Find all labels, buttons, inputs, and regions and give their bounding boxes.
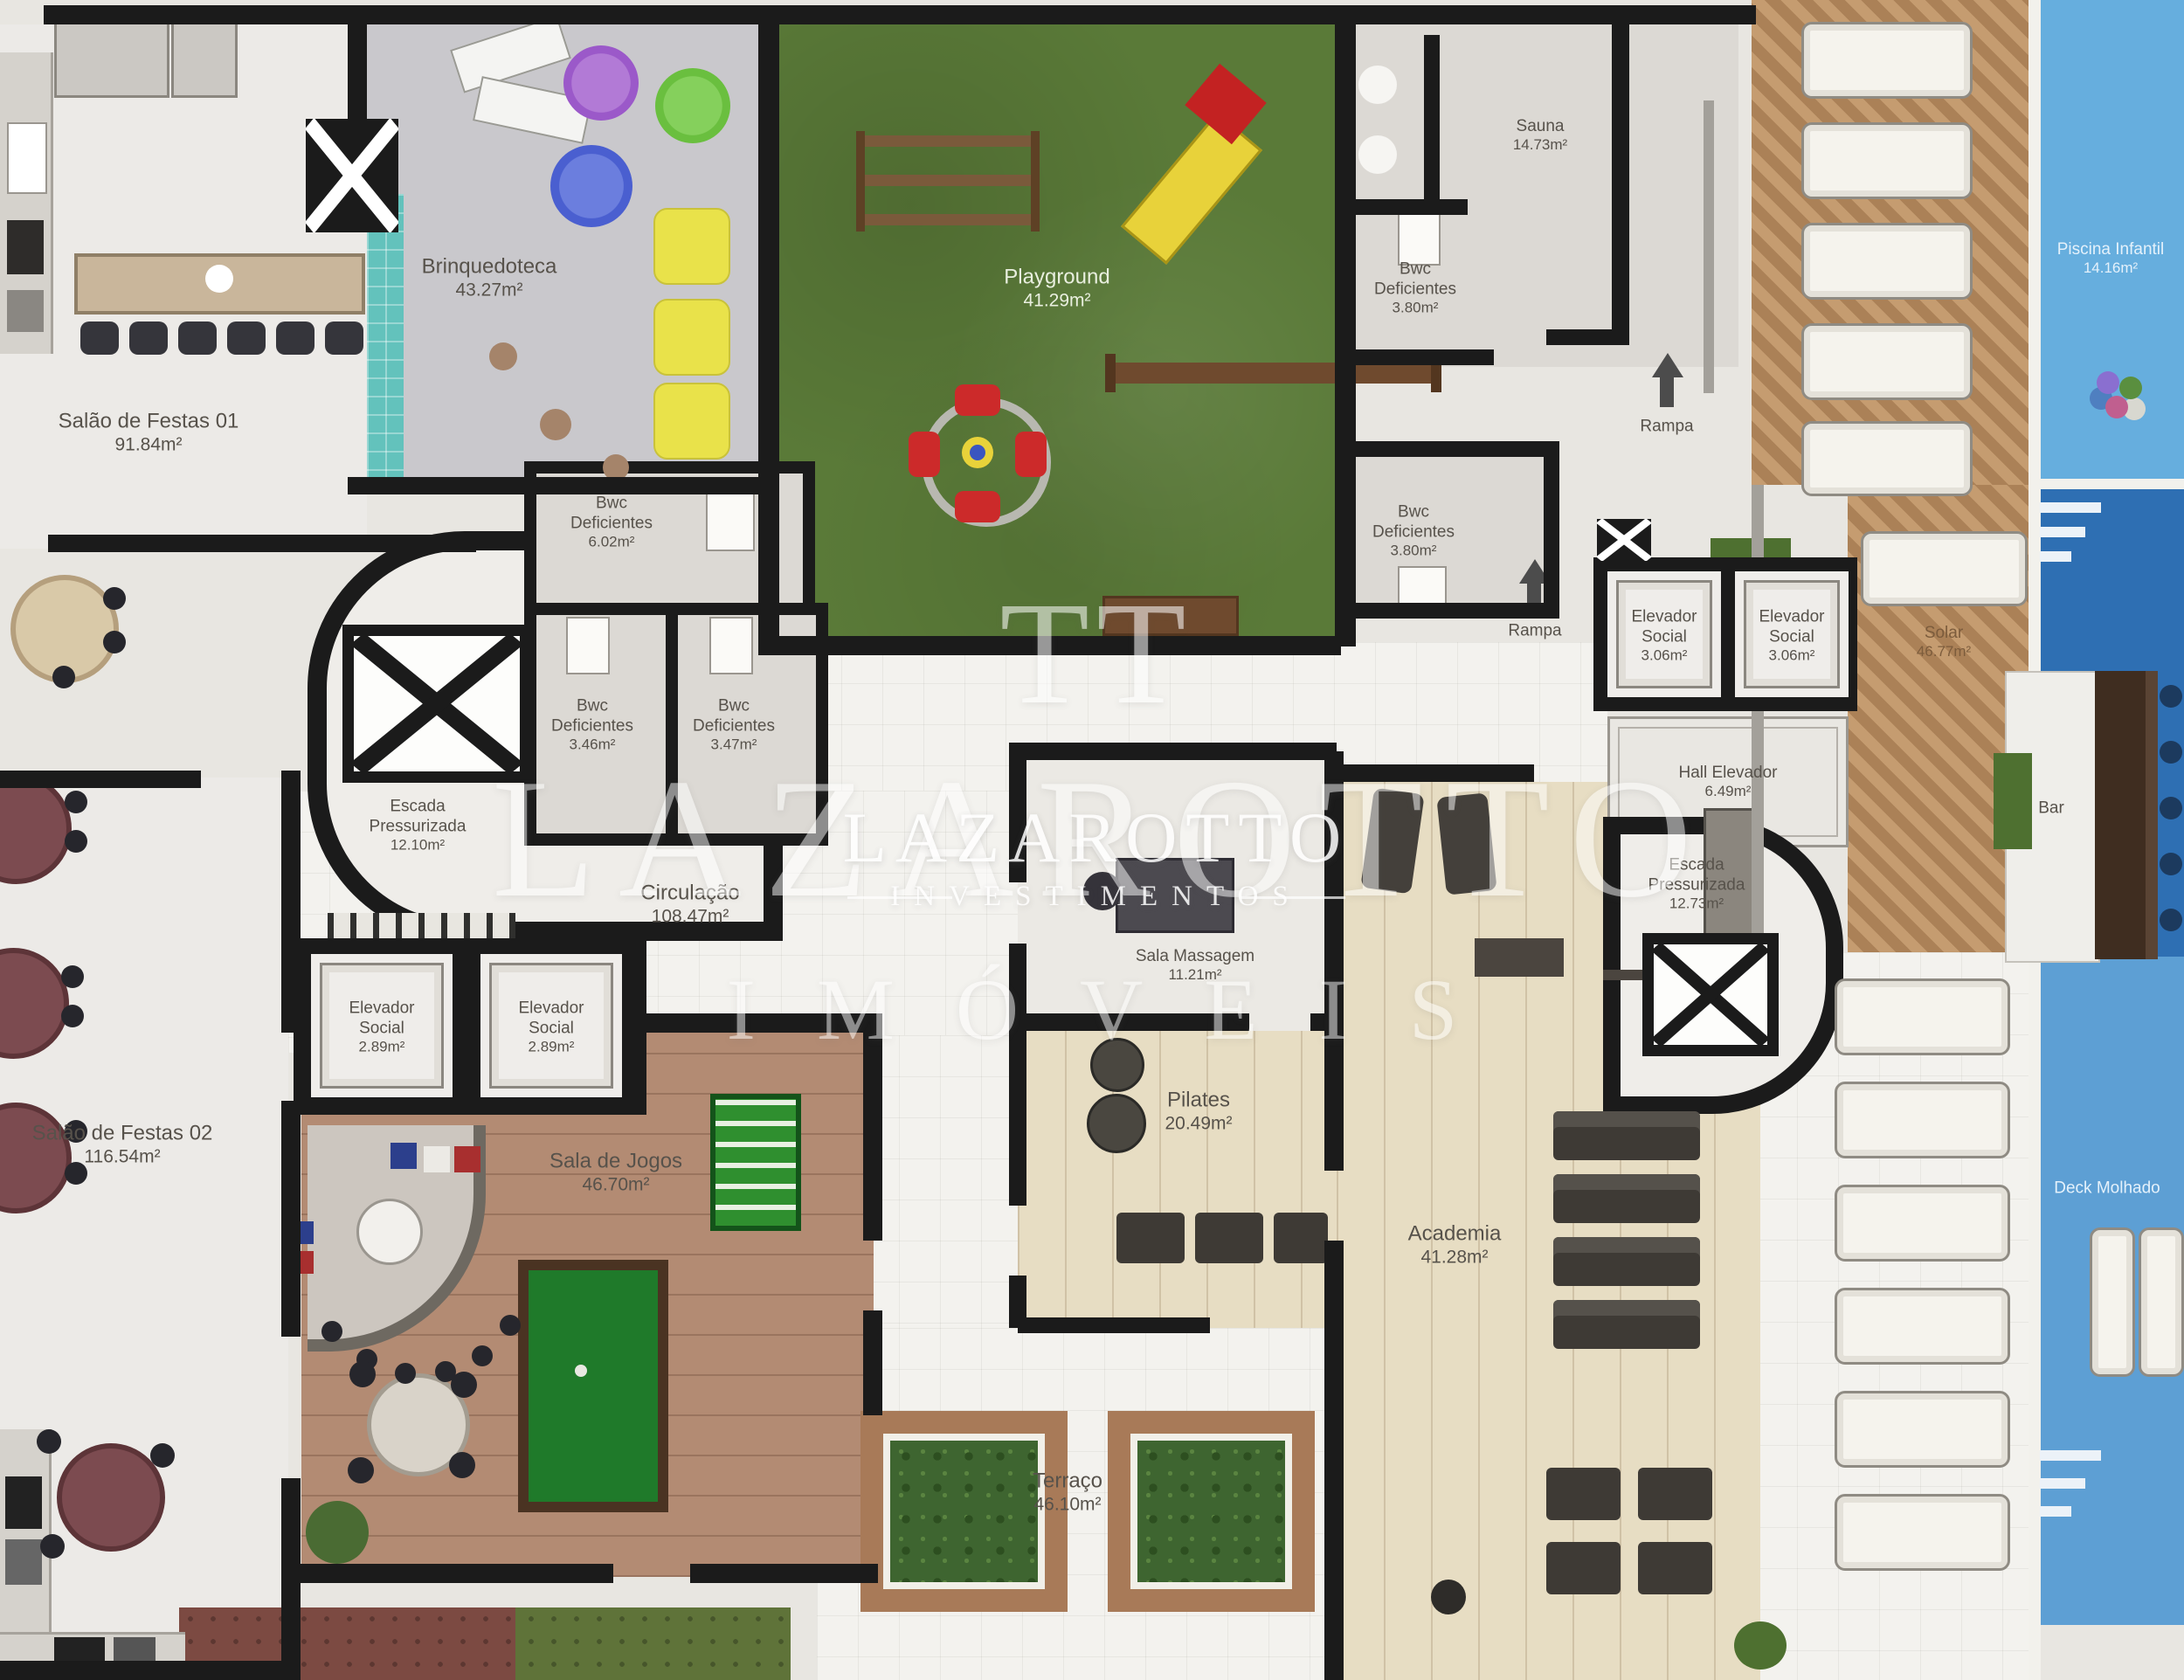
fridge xyxy=(5,1539,42,1585)
playroom-mosaic-strip xyxy=(367,194,404,477)
pool-step xyxy=(2040,502,2101,513)
coffee-machine-icon xyxy=(205,265,233,293)
gym-machine xyxy=(1638,1542,1712,1594)
room-name: Elevador Social xyxy=(329,998,434,1038)
wall xyxy=(0,1661,288,1680)
bar-stool-in-pool xyxy=(2160,741,2182,764)
room-area: 3.46m² xyxy=(570,736,616,755)
room-area: 2.89m² xyxy=(359,1039,405,1057)
wall xyxy=(348,477,779,494)
label-hall-elevador: Hall Elevador 6.49m² xyxy=(1654,763,1802,801)
room-name: Rampa xyxy=(1640,416,1693,436)
chair xyxy=(65,830,87,853)
wall xyxy=(1335,5,1356,646)
room-area: 3.80m² xyxy=(1393,300,1439,318)
sun-lounger xyxy=(1801,223,1973,300)
sun-lounger xyxy=(1835,978,2010,1055)
label-bar: Bar xyxy=(1990,798,2112,818)
toilet xyxy=(566,617,610,674)
sauna-stool xyxy=(1358,66,1397,104)
room-name: Brinquedoteca xyxy=(422,254,557,280)
wall xyxy=(1324,764,1534,782)
label-deck-molhado: Deck Molhado xyxy=(2046,1178,2168,1198)
plant xyxy=(1734,1621,1787,1670)
label-escada-pressurizada: Escada Pressurizada 12.10m² xyxy=(356,796,479,854)
label-sala-de-jogos: Sala de Jogos 46.70m² xyxy=(529,1149,703,1197)
sun-lounger xyxy=(1835,1494,2010,1571)
wall-playground-bottom xyxy=(769,636,1341,655)
label-sala-massagem: Sala Massagem 11.21m² xyxy=(1134,946,1256,985)
room-name: Sala Massagem xyxy=(1136,946,1254,966)
room-area: 20.49m² xyxy=(1165,1113,1232,1136)
room-name: Playground xyxy=(1004,265,1109,290)
chair xyxy=(40,1534,65,1559)
room-name: Rampa xyxy=(1508,620,1561,640)
plant xyxy=(306,1501,369,1564)
round-table xyxy=(57,1443,165,1552)
room-area: 14.73m² xyxy=(1513,136,1567,155)
pool-step xyxy=(2040,1506,2071,1517)
label-brinquedoteca: Brinquedoteca 43.27m² xyxy=(402,254,577,302)
kids-table-yellow xyxy=(653,208,730,285)
label-playground: Playground 41.29m² xyxy=(970,265,1144,313)
label-piscina-infantil: Piscina Infantil 14.16m² xyxy=(2049,239,2172,278)
play-mat-green xyxy=(655,68,730,143)
wall xyxy=(758,5,779,491)
bar-round-table xyxy=(356,1199,423,1265)
climbing-bars xyxy=(860,175,1031,186)
room-area: 12.73m² xyxy=(1669,895,1724,914)
room-area: 46.77m² xyxy=(1917,643,1971,661)
room-name: Sala de Jogos xyxy=(549,1149,682,1174)
climbing-post xyxy=(1031,131,1040,232)
wall xyxy=(1009,1031,1026,1206)
room-area: 116.54m² xyxy=(84,1146,160,1169)
label-elevador-social: Elevador Social 2.89m² xyxy=(329,998,434,1056)
chair xyxy=(61,965,84,988)
chair xyxy=(1083,872,1122,910)
kitchen-sink xyxy=(7,122,47,194)
room-area: 14.16m² xyxy=(2084,259,2138,278)
bar-stool xyxy=(129,321,168,355)
room-name: Deck Molhado xyxy=(2054,1178,2160,1198)
label-terraco: Terraço 46.10m² xyxy=(1002,1469,1133,1517)
room-area: 3.80m² xyxy=(1391,543,1437,561)
label-bwc-deficientes: Bwc Deficientes 6.02m² xyxy=(555,493,668,551)
stove xyxy=(5,1476,42,1529)
wall xyxy=(690,1564,878,1583)
room-area: 3.06m² xyxy=(1641,647,1688,666)
play-mat-purple xyxy=(563,45,639,121)
bar-stool-in-pool xyxy=(2160,797,2182,819)
swing-beam xyxy=(1105,363,1441,384)
pool-toy-flower xyxy=(2097,371,2119,394)
toilet xyxy=(709,617,753,674)
gym-machine xyxy=(1546,1468,1621,1520)
label-salao-festas-02: Salão de Festas 02 116.54m² xyxy=(13,1121,232,1169)
room-name: Bwc Deficientes xyxy=(1361,501,1466,542)
room-name: Elevador Social xyxy=(1744,606,1840,646)
kids-table-yellow xyxy=(653,383,730,460)
floor-plan: Salão de Festas 01 91.84m² Brinquedoteca… xyxy=(0,0,2184,1680)
room-area: 6.02m² xyxy=(589,534,635,552)
wall xyxy=(1546,329,1629,345)
label-elevador-social: Elevador Social 3.06m² xyxy=(1616,606,1712,665)
cushion-white xyxy=(424,1146,450,1172)
label-rampa: Rampa xyxy=(1474,620,1596,640)
weight-bench xyxy=(1553,1237,1700,1286)
room-name: Bwc Deficientes xyxy=(1363,259,1468,299)
room-name: Bwc Deficientes xyxy=(544,695,640,736)
chair xyxy=(150,1443,175,1468)
bar-stool xyxy=(472,1345,493,1366)
climbing-bars xyxy=(860,214,1031,225)
wall xyxy=(1324,751,1344,1171)
room-area: 46.70m² xyxy=(582,1174,649,1197)
weight-bench xyxy=(1553,1111,1700,1160)
carousel-seat xyxy=(1015,432,1047,477)
bar-stool-in-pool xyxy=(2160,685,2182,708)
pool-table xyxy=(518,1260,668,1512)
label-rampa: Rampa xyxy=(1606,416,1728,436)
terrace-planter xyxy=(1108,1411,1315,1612)
stove xyxy=(7,220,44,274)
exercise-mat xyxy=(1274,1213,1328,1263)
stair-elevator-icon xyxy=(342,625,531,783)
room-area: 12.10m² xyxy=(390,837,445,855)
bar-stool xyxy=(276,321,314,355)
room-area: 41.29m² xyxy=(1023,290,1090,313)
room-name: Salão de Festas 02 xyxy=(32,1121,213,1146)
chair xyxy=(103,631,126,653)
weight-bench xyxy=(1553,1174,1700,1223)
pilates-floor xyxy=(1018,1031,1337,1328)
sun-lounger xyxy=(1835,1185,2010,1262)
room-name: Solar xyxy=(1925,623,1963,643)
chair xyxy=(103,587,126,610)
chair xyxy=(65,791,87,813)
room-area: 6.49m² xyxy=(1705,783,1752,801)
chair xyxy=(349,1361,376,1387)
carousel-seat xyxy=(955,491,1000,522)
wall xyxy=(1337,199,1468,215)
toilet xyxy=(1398,566,1447,608)
label-pilates: Pilates 20.49m² xyxy=(1111,1088,1286,1136)
room-name: Elevador Social xyxy=(1616,606,1712,646)
service-elevator-icon xyxy=(306,119,398,232)
label-elevador-social: Elevador Social 3.06m² xyxy=(1744,606,1840,665)
exercise-mat xyxy=(1116,1213,1185,1263)
wall xyxy=(1337,349,1494,365)
wall xyxy=(863,1310,882,1415)
weight-bench xyxy=(1553,1300,1700,1349)
room-area: 91.84m² xyxy=(114,434,182,457)
sun-lounger xyxy=(1801,22,1973,99)
label-bwc-deficientes: Bwc Deficientes 3.46m² xyxy=(544,695,640,754)
wall xyxy=(1424,35,1440,205)
ramp-arrow-stem xyxy=(1660,376,1674,407)
room-name: Terraço xyxy=(1033,1469,1102,1494)
room-area: 41.28m² xyxy=(1420,1247,1488,1269)
chair xyxy=(449,1452,475,1478)
room-name: Escada Pressurizada xyxy=(1635,854,1758,895)
toy xyxy=(540,409,571,440)
chair xyxy=(61,1005,84,1027)
service-hatch-icon xyxy=(1597,519,1651,561)
pool-step xyxy=(2040,551,2071,562)
wall xyxy=(281,771,301,1033)
sun-lounger xyxy=(1835,1288,2010,1365)
chair xyxy=(348,1457,374,1483)
wall xyxy=(1612,24,1629,345)
wall xyxy=(281,1564,613,1583)
room-name: Salão de Festas 01 xyxy=(59,409,239,434)
stair-elevator-icon xyxy=(1642,933,1779,1056)
bar-stool-in-pool xyxy=(2160,853,2182,875)
pool-table-spot xyxy=(575,1365,587,1377)
wall xyxy=(863,1013,882,1241)
wall xyxy=(281,1101,301,1337)
room-area: 3.06m² xyxy=(1769,647,1815,666)
pool-divider xyxy=(2040,479,2184,489)
label-circulacao: Circulação 108.47m² xyxy=(603,881,778,929)
glass-partition xyxy=(1704,100,1714,393)
label-solar: Solar 46.77m² xyxy=(1883,623,2005,661)
room-name: Piscina Infantil xyxy=(2057,239,2165,259)
sun-lounger xyxy=(1861,531,2028,606)
sun-lounger xyxy=(1835,1082,2010,1158)
room-name: Bar xyxy=(2038,798,2064,818)
label-escada-pressurizada: Escada Pressurizada 12.73m² xyxy=(1635,854,1758,913)
elliptical-machine xyxy=(1436,792,1496,895)
sun-lounger xyxy=(1835,1391,2010,1468)
shrub xyxy=(1137,1441,1285,1582)
foosball-table xyxy=(710,1094,801,1231)
bar-stool xyxy=(80,321,119,355)
carousel-seat xyxy=(909,432,940,477)
room-name: Bwc Deficientes xyxy=(686,695,782,736)
room-name: Elevador Social xyxy=(499,998,604,1038)
gym-machine xyxy=(1546,1542,1621,1594)
wet-deck-lounger xyxy=(2139,1227,2184,1377)
ramp-arrow-icon xyxy=(1652,353,1683,377)
sun-lounger xyxy=(1801,323,1973,400)
label-academia: Academia 41.28m² xyxy=(1367,1221,1542,1269)
label-bwc-deficientes: Bwc Deficientes 3.80m² xyxy=(1361,501,1466,560)
room-name: Bwc Deficientes xyxy=(555,493,668,533)
bar-stool xyxy=(227,321,266,355)
wall xyxy=(1544,441,1559,616)
wall xyxy=(1337,603,1559,619)
wall xyxy=(1009,1013,1249,1031)
playground-bench xyxy=(1102,596,1239,636)
wall xyxy=(1018,1317,1210,1333)
room-name: Circulação xyxy=(640,881,739,906)
wall-top xyxy=(44,5,1756,24)
room-area: 43.27m² xyxy=(455,280,522,302)
gym-machine xyxy=(1638,1468,1712,1520)
swing-leg xyxy=(1105,354,1116,392)
wall xyxy=(1009,743,1337,760)
pool-step xyxy=(2040,1478,2085,1489)
room-area: 3.47m² xyxy=(711,736,757,755)
bar-stool xyxy=(500,1315,521,1336)
wall xyxy=(1324,1241,1344,1680)
sun-lounger xyxy=(1801,421,1973,496)
label-bwc-deficientes: Bwc Deficientes 3.80m² xyxy=(1363,259,1468,317)
bar-stool xyxy=(321,1321,342,1342)
wall xyxy=(0,771,201,788)
room-name: Sauna xyxy=(1517,116,1565,136)
room-name: Pilates xyxy=(1167,1088,1230,1113)
carousel-center-dot xyxy=(970,445,985,460)
room-name: Hall Elevador xyxy=(1679,763,1778,783)
wall xyxy=(1337,441,1559,457)
room-area: 46.10m² xyxy=(1033,1494,1101,1517)
cushion-red xyxy=(454,1146,480,1172)
chair xyxy=(52,666,75,688)
massage-table xyxy=(1116,858,1234,933)
play-mat-blue xyxy=(550,145,632,227)
wall xyxy=(48,535,476,552)
sun-lounger xyxy=(1801,122,1973,199)
label-elevador-social: Elevador Social 2.89m² xyxy=(499,998,604,1056)
pool-step xyxy=(2040,1450,2101,1461)
kettlebell xyxy=(1431,1580,1466,1614)
climbing-post xyxy=(856,131,865,232)
climbing-bars xyxy=(860,135,1031,147)
dumbbell-icon xyxy=(1485,952,1564,963)
toy xyxy=(489,342,517,370)
carousel-seat xyxy=(955,384,1000,416)
chair xyxy=(37,1429,61,1454)
chair xyxy=(451,1372,477,1398)
wet-deck-lounger xyxy=(2090,1227,2135,1377)
room-area: 11.21m² xyxy=(1168,966,1221,985)
bar-stool xyxy=(395,1363,416,1384)
label-salao-festas-01: Salão de Festas 01 91.84m² xyxy=(35,409,262,457)
pool-step xyxy=(2040,527,2085,537)
room-name: Academia xyxy=(1408,1221,1502,1247)
bar-stool xyxy=(178,321,217,355)
bar-stool-in-pool xyxy=(2160,909,2182,931)
exercise-mat xyxy=(1195,1213,1263,1263)
toilet xyxy=(1398,210,1441,266)
cushion-blue xyxy=(390,1143,417,1169)
fridge xyxy=(7,290,44,332)
room-name: Escada Pressurizada xyxy=(356,796,479,836)
pilates-ball xyxy=(1090,1038,1144,1092)
wall xyxy=(758,489,779,655)
room-area: 108.47m² xyxy=(652,906,729,929)
kids-table-yellow xyxy=(653,299,730,376)
sauna-stool xyxy=(1358,135,1397,174)
room-area: 2.89m² xyxy=(529,1039,575,1057)
label-sauna: Sauna 14.73m² xyxy=(1479,116,1601,155)
bar-stool xyxy=(325,321,363,355)
wall xyxy=(1009,743,1026,882)
label-bwc-deficientes: Bwc Deficientes 3.47m² xyxy=(686,695,782,754)
